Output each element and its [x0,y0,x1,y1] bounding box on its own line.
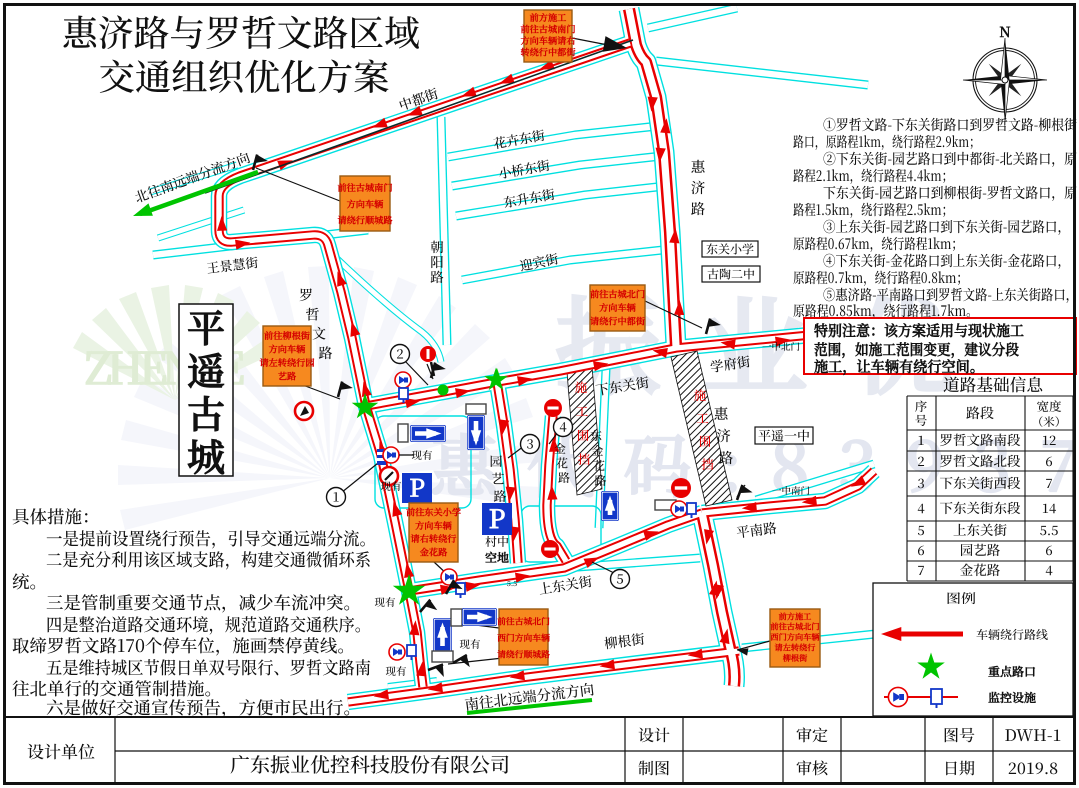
svg-text:罗: 罗 [299,285,313,305]
svg-text:现有: 现有 [375,595,396,610]
svg-text:现有: 现有 [381,479,402,494]
svg-text:请绕行中都街: 请绕行中都街 [590,313,646,327]
svg-text:方向车辆: 方向车辆 [269,341,307,355]
svg-text:现有: 现有 [412,448,433,463]
svg-text:哲: 哲 [306,304,320,324]
svg-text:工: 工 [696,409,709,427]
svg-text:罗哲文路南段: 罗哲文路南段 [940,429,1021,449]
svg-text:12: 12 [1042,430,1057,449]
svg-text:前往古城北门: 前往古城北门 [497,614,550,627]
svg-text:挡: 挡 [578,450,591,468]
svg-text:6: 6 [917,540,924,559]
svg-text:一中北门: 一中北门 [762,339,800,353]
svg-text:园艺路: 园艺路 [960,539,1001,559]
svg-text:4: 4 [559,417,567,436]
svg-text:西门方向车辆: 西门方向车辆 [770,632,820,643]
svg-text:道路基础信息: 道路基础信息 [943,371,1043,396]
svg-text:艺: 艺 [491,469,504,488]
svg-text:车辆绕行路线: 车辆绕行路线 [976,626,1048,643]
svg-text:转绕行中都街: 转绕行中都街 [520,45,576,59]
svg-text:围: 围 [577,426,590,444]
svg-text:1: 1 [332,487,339,506]
svg-text:方向车辆: 方向车辆 [599,300,637,314]
svg-text:审定: 审定 [796,723,828,746]
svg-text:前往古城南门: 前往古城南门 [337,180,392,194]
svg-text:路: 路 [319,343,333,363]
svg-text:柳根街: 柳根街 [783,653,808,664]
svg-text:请左转绕行园: 请左转绕行园 [259,355,314,369]
svg-text:金花路: 金花路 [960,559,1001,579]
svg-text:二是充分利用该区域支路，构建交通微循环系: 二是充分利用该区域支路，构建交通微循环系 [46,547,371,572]
svg-text:5.5: 5.5 [1040,520,1059,539]
svg-text:号: 号 [915,411,928,429]
svg-text:围: 围 [699,432,712,450]
svg-text:金花路: 金花路 [419,544,448,558]
svg-text:5.5: 5.5 [507,579,517,589]
svg-text:7: 7 [917,560,924,579]
svg-text:审核: 审核 [796,756,828,779]
svg-text:重点路口: 重点路口 [988,663,1036,680]
svg-text:文: 文 [312,324,326,344]
svg-text:设计: 设计 [638,723,670,746]
svg-text:惠: 惠 [691,156,706,177]
svg-text:2: 2 [917,451,924,470]
svg-text:请绕行顺城路: 请绕行顺城路 [337,213,393,227]
svg-text:宽度: 宽度 [1036,397,1062,415]
svg-text:路: 路 [430,266,444,286]
svg-text:下东关街西段: 下东关街西段 [940,472,1021,492]
svg-text:惠: 惠 [714,403,729,424]
svg-text:上东关街: 上东关街 [953,519,1007,539]
svg-text:村中: 村中 [485,533,509,550]
svg-text:前方施工: 前方施工 [779,611,813,622]
svg-text:济: 济 [691,177,706,198]
svg-text:路: 路 [493,486,506,505]
svg-text:东关小学: 东关小学 [706,241,754,258]
svg-text:前往东关小学: 前往东关小学 [406,505,462,519]
svg-text:罗哲文路北段: 罗哲文路北段 [940,450,1021,470]
svg-text:4: 4 [1045,560,1053,579]
svg-text:一中南门: 一中南门 [772,483,810,497]
svg-text:请右转绕行: 请右转绕行 [411,531,458,545]
svg-text:路: 路 [719,447,734,468]
svg-text:空地: 空地 [485,549,509,566]
svg-text:方向车辆: 方向车辆 [347,196,385,210]
svg-text:监控设施: 监控设施 [988,689,1036,706]
svg-text:N: N [999,22,1010,42]
svg-text:前往柳根街: 前往柳根街 [264,328,311,342]
svg-text:6: 6 [1045,451,1052,470]
svg-text:（米）: （米） [1032,414,1067,430]
svg-text:方向车辆: 方向车辆 [415,518,453,532]
svg-text:平遥一中: 平遥一中 [758,426,810,445]
svg-text:6: 6 [1045,540,1052,559]
svg-text:制图: 制图 [638,756,670,779]
svg-text:西门方向车辆: 西门方向车辆 [497,631,550,644]
svg-text:交通组织优化方案: 交通组织优化方案 [99,50,390,101]
svg-text:艺路: 艺路 [278,368,297,382]
svg-text:路: 路 [594,472,606,489]
svg-text:3: 3 [526,434,533,453]
svg-text:六是做好交通宣传预告，方便市民出行。: 六是做好交通宣传预告，方便市民出行。 [46,695,361,720]
svg-text:1: 1 [917,430,924,449]
svg-text:P: P [489,500,506,536]
svg-text:5: 5 [616,569,623,588]
svg-text:2: 2 [396,344,403,363]
svg-text:图号: 图号 [943,723,975,746]
svg-text:施: 施 [694,386,707,404]
svg-text:挡: 挡 [701,455,714,473]
svg-text:济: 济 [716,425,731,446]
svg-text:2019.8: 2019.8 [1008,756,1058,779]
svg-text:P: P [409,468,425,503]
svg-text:DWH-1: DWH-1 [1004,723,1061,746]
svg-text:下东关街东段: 下东关街东段 [940,497,1021,517]
svg-text:设计单位: 设计单位 [27,738,95,763]
svg-text:路: 路 [558,469,570,486]
svg-text:特别注意：该方案适用与现状施工: 特别注意：该方案适用与现状施工 [814,320,1024,341]
svg-text:园: 园 [489,451,502,470]
svg-text:现有: 现有 [386,664,407,679]
svg-text:前往古城北门: 前往古城北门 [770,622,819,633]
svg-text:3: 3 [917,473,924,492]
svg-text:日期: 日期 [943,756,975,779]
svg-text:14: 14 [1042,498,1057,517]
svg-text:城: 城 [187,427,225,482]
svg-text:5: 5 [917,520,924,539]
svg-text:请绕行顺城路: 请绕行顺城路 [497,648,550,661]
svg-text:图例: 图例 [946,588,976,607]
svg-text:广东振业优控科技股份有限公司: 广东振业优控科技股份有限公司 [230,749,510,778]
svg-text:施: 施 [575,378,588,396]
svg-text:工: 工 [576,402,589,420]
svg-text:古陶二中: 古陶二中 [707,266,755,283]
svg-text:7: 7 [1045,473,1052,492]
svg-text:请左转绕行: 请左转绕行 [775,643,817,654]
svg-text:统。: 统。 [12,569,47,594]
svg-text:4: 4 [917,498,925,517]
svg-text:路段: 路段 [966,403,994,423]
svg-text:路: 路 [691,198,706,219]
svg-text:现有: 现有 [460,637,481,652]
svg-text:前往古城北门: 前往古城北门 [590,287,645,301]
